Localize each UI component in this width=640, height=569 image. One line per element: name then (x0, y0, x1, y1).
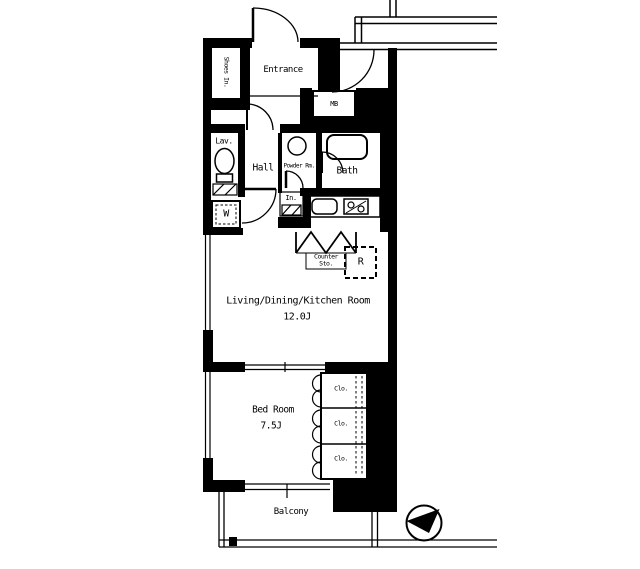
closet-label-3: Clo. (334, 455, 348, 462)
floorplan: Shoes In. Entrance MB Lav. Hall Powder R… (0, 0, 640, 569)
stove-icon (344, 199, 368, 214)
hall-label: Hall (253, 164, 274, 175)
ldk-name-label: Living/Dining/Kitchen Room (226, 295, 370, 307)
storage-label: In. (285, 194, 296, 202)
bedroom-name-label: Bed Room (252, 406, 294, 417)
wall (325, 362, 397, 372)
meter-box-label: MB (330, 100, 337, 108)
washer-label: W (223, 208, 229, 220)
toilet-icon (215, 149, 234, 183)
wall (278, 217, 311, 228)
bathtub-icon (327, 135, 367, 159)
powder-door-icon (286, 171, 303, 188)
front-door-icon (253, 8, 298, 42)
counter-storage-label: Counter Sto. (309, 254, 343, 269)
closet-label-2: Clo. (334, 420, 348, 427)
wall (300, 38, 340, 48)
closet-shelf-hatch (356, 376, 362, 476)
balcony-label: Balcony (274, 507, 308, 517)
wall (203, 124, 245, 133)
wall (203, 480, 245, 492)
wall (211, 228, 243, 235)
wall (238, 133, 245, 197)
lavatory-label: Lav. (215, 136, 232, 145)
sliding-partition (245, 362, 325, 372)
wall (318, 48, 340, 90)
powder-room-label: Powder Rm. (283, 164, 314, 171)
wall (380, 133, 388, 232)
bedroom-size-label: 7.5J (261, 422, 282, 433)
balcony-window (245, 484, 330, 498)
powder-basin-icon (288, 137, 306, 155)
ldk-window (206, 235, 211, 330)
closet-folding-doors (313, 375, 322, 479)
hall-door-icon (247, 104, 273, 130)
kitchen-counter (305, 196, 380, 217)
wall (388, 48, 397, 512)
wall (368, 372, 388, 480)
wall (333, 480, 397, 512)
washbasin-icon (213, 184, 237, 195)
wall (203, 362, 245, 372)
wall (280, 124, 356, 133)
balcony-corner-tick (229, 537, 237, 546)
north-arrow-icon (407, 506, 442, 541)
entrance-label: Entrance (263, 65, 302, 75)
wall (278, 133, 282, 193)
wall (316, 133, 322, 190)
bath-label: Bath (337, 167, 358, 178)
ldk-size-label: 12.0J (283, 311, 311, 323)
refrigerator-label: R (358, 256, 364, 268)
corridor-lines (340, 0, 497, 50)
shoes-closet-label: Shoes In. (222, 57, 229, 88)
ldk-door-icon (242, 189, 276, 223)
kitchen-sink-icon (312, 199, 337, 214)
closet-label-1: Clo. (334, 385, 348, 392)
bedroom-window (206, 372, 211, 458)
